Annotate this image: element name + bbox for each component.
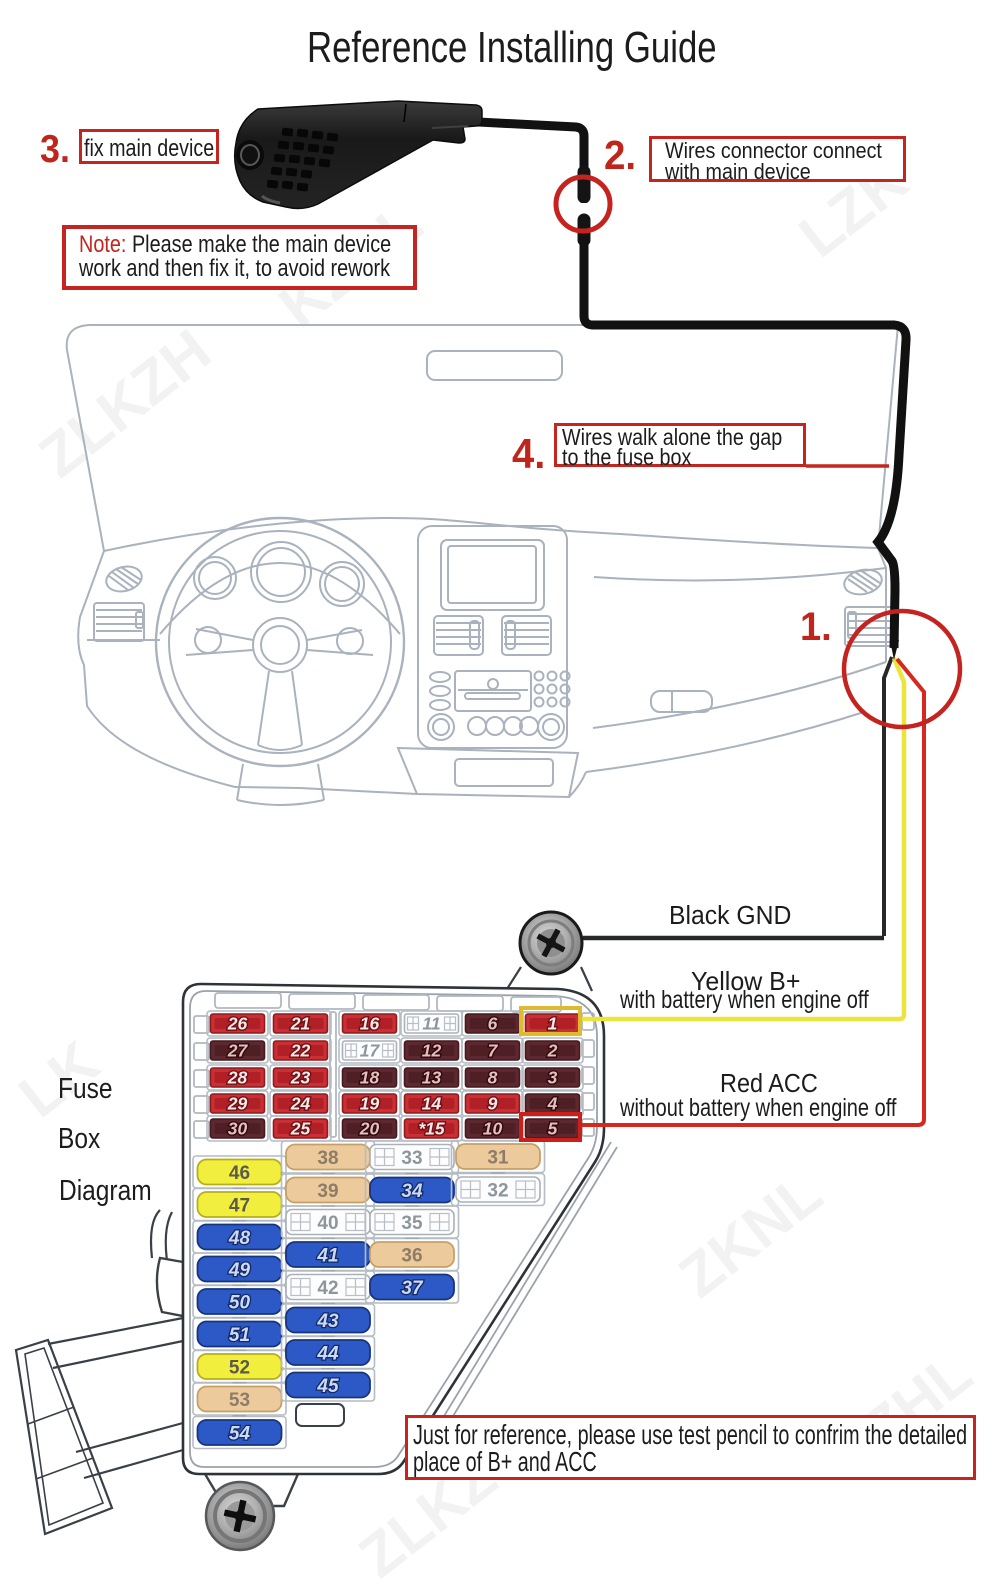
svg-text:42: 42 — [317, 1278, 338, 1299]
svg-text:50: 50 — [229, 1293, 251, 1314]
svg-text:54: 54 — [229, 1424, 251, 1445]
svg-text:12: 12 — [422, 1041, 442, 1061]
svg-text:28: 28 — [227, 1068, 248, 1088]
svg-text:46: 46 — [229, 1163, 250, 1184]
svg-text:26: 26 — [227, 1014, 248, 1034]
svg-text:23: 23 — [290, 1068, 311, 1088]
svg-text:5: 5 — [548, 1119, 558, 1139]
svg-text:52: 52 — [229, 1358, 250, 1379]
svg-text:47: 47 — [229, 1196, 250, 1217]
svg-text:22: 22 — [290, 1041, 311, 1061]
svg-text:40: 40 — [317, 1213, 338, 1234]
svg-text:18: 18 — [360, 1068, 380, 1088]
svg-text:45: 45 — [316, 1376, 339, 1397]
svg-text:17: 17 — [360, 1041, 381, 1061]
svg-text:20: 20 — [359, 1119, 380, 1139]
svg-text:11: 11 — [422, 1014, 440, 1034]
svg-text:32: 32 — [487, 1181, 508, 1202]
svg-text:ZKNL: ZKNL — [667, 1159, 834, 1310]
svg-text:43: 43 — [316, 1311, 339, 1332]
svg-text:53: 53 — [229, 1390, 250, 1411]
svg-text:13: 13 — [422, 1068, 442, 1088]
svg-text:*15: *15 — [418, 1119, 445, 1139]
svg-text:6: 6 — [488, 1014, 498, 1034]
svg-text:31: 31 — [487, 1148, 509, 1169]
svg-text:3: 3 — [548, 1068, 558, 1088]
svg-text:8: 8 — [488, 1068, 498, 1088]
svg-text:38: 38 — [317, 1148, 338, 1169]
svg-text:25: 25 — [290, 1119, 311, 1139]
svg-text:44: 44 — [316, 1344, 339, 1365]
svg-text:49: 49 — [228, 1260, 251, 1281]
svg-text:41: 41 — [316, 1246, 338, 1267]
svg-text:1: 1 — [548, 1014, 558, 1034]
svg-text:27: 27 — [227, 1041, 249, 1061]
svg-text:39: 39 — [317, 1181, 338, 1202]
svg-text:29: 29 — [227, 1094, 248, 1114]
svg-text:33: 33 — [401, 1148, 422, 1169]
svg-text:4: 4 — [547, 1094, 558, 1114]
svg-text:51: 51 — [229, 1325, 250, 1346]
svg-text:9: 9 — [488, 1094, 498, 1114]
svg-text:ZLKZH: ZLKZH — [27, 316, 223, 490]
svg-text:7: 7 — [488, 1041, 499, 1061]
svg-text:16: 16 — [360, 1014, 380, 1034]
svg-text:30: 30 — [228, 1119, 248, 1139]
svg-text:2: 2 — [547, 1041, 558, 1061]
svg-text:24: 24 — [290, 1094, 311, 1114]
svg-text:35: 35 — [401, 1213, 423, 1234]
svg-text:19: 19 — [360, 1094, 380, 1114]
svg-text:21: 21 — [290, 1014, 310, 1034]
svg-text:37: 37 — [401, 1278, 424, 1299]
svg-text:14: 14 — [422, 1094, 442, 1114]
svg-text:34: 34 — [401, 1181, 423, 1202]
svg-text:48: 48 — [228, 1228, 251, 1249]
svg-text:36: 36 — [401, 1246, 422, 1267]
svg-text:10: 10 — [483, 1119, 503, 1139]
